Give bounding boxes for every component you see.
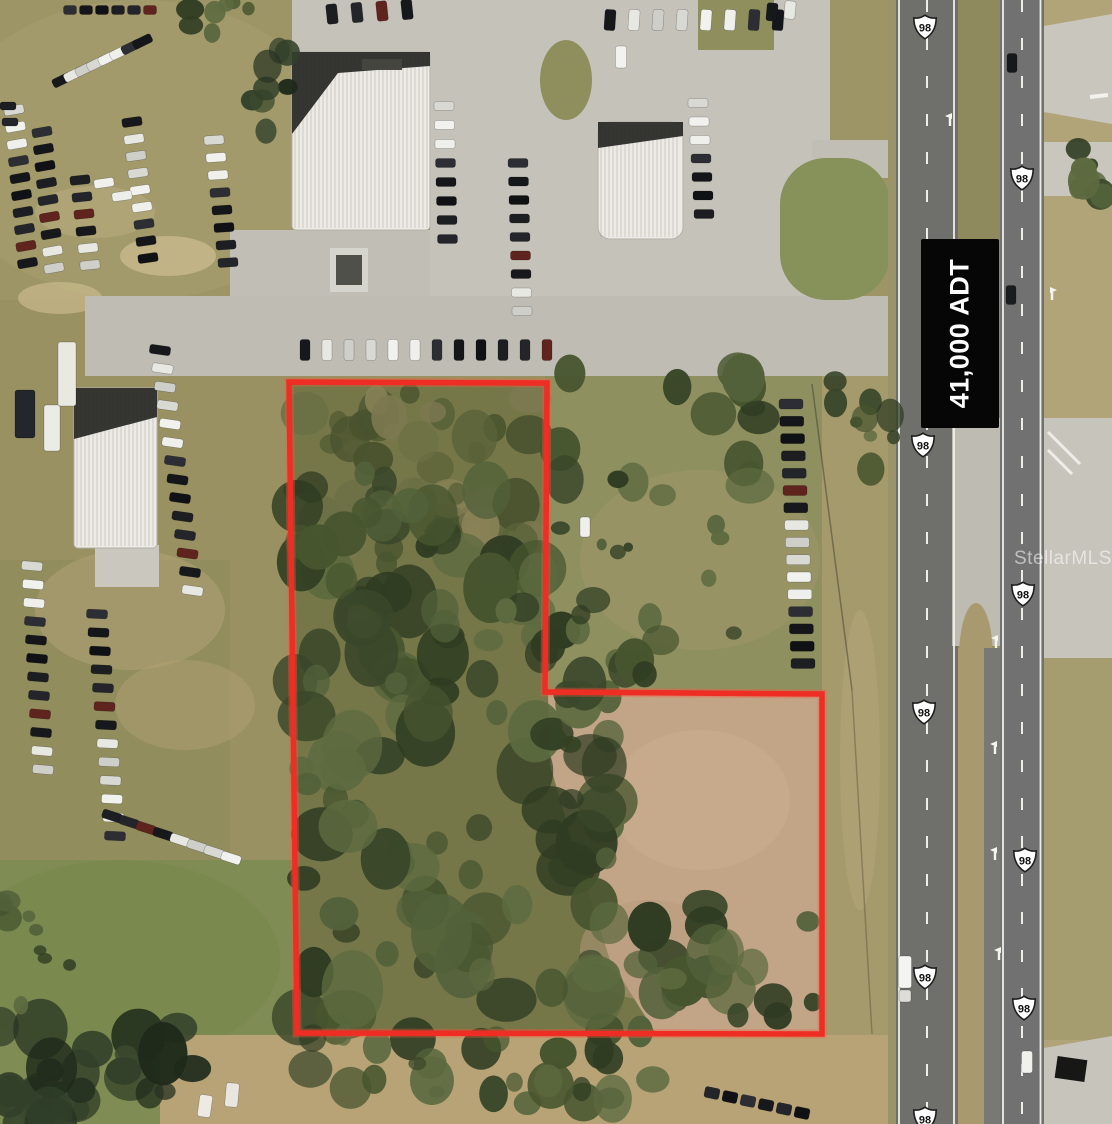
car bbox=[212, 205, 233, 215]
car bbox=[210, 187, 231, 197]
car bbox=[899, 956, 912, 988]
car bbox=[700, 9, 712, 31]
car bbox=[88, 627, 109, 637]
car bbox=[204, 135, 225, 145]
car bbox=[520, 340, 530, 361]
car bbox=[784, 1, 797, 20]
tree bbox=[535, 968, 567, 1007]
tree bbox=[385, 672, 407, 694]
car bbox=[789, 607, 813, 617]
car bbox=[511, 251, 531, 260]
car bbox=[375, 0, 388, 21]
terrain-patch bbox=[120, 236, 216, 276]
car bbox=[72, 191, 93, 202]
tree bbox=[554, 355, 585, 393]
car bbox=[780, 416, 804, 426]
billboard bbox=[1055, 1056, 1088, 1082]
road-surface bbox=[95, 545, 159, 587]
tree bbox=[502, 885, 532, 924]
route-number-text: 98 bbox=[919, 973, 931, 985]
car bbox=[410, 340, 420, 361]
tree bbox=[462, 461, 510, 519]
tree bbox=[63, 959, 76, 971]
road-surface bbox=[984, 648, 1000, 1124]
car bbox=[197, 1094, 213, 1118]
tree bbox=[404, 685, 453, 742]
car bbox=[206, 152, 227, 162]
tree bbox=[572, 1077, 591, 1101]
car bbox=[101, 794, 122, 804]
tree bbox=[663, 369, 691, 405]
car bbox=[1006, 286, 1016, 305]
tree bbox=[288, 1050, 332, 1087]
car bbox=[542, 340, 552, 361]
route-number-text: 98 bbox=[919, 1115, 931, 1124]
car bbox=[218, 257, 239, 267]
car bbox=[96, 6, 109, 15]
building bbox=[292, 52, 430, 230]
tree bbox=[23, 910, 36, 922]
car bbox=[785, 537, 809, 547]
tree bbox=[551, 521, 570, 534]
car bbox=[86, 609, 107, 619]
car bbox=[388, 340, 398, 361]
lane-marking bbox=[1090, 95, 1108, 97]
car bbox=[652, 9, 664, 31]
us-route-98-shield-icon: 98 bbox=[914, 1107, 936, 1124]
tree bbox=[496, 598, 517, 623]
road-surface bbox=[1044, 14, 1112, 124]
car bbox=[512, 307, 532, 316]
tree bbox=[419, 402, 446, 423]
car bbox=[688, 99, 708, 108]
car bbox=[80, 259, 101, 270]
car bbox=[476, 340, 486, 361]
car bbox=[400, 0, 413, 20]
car bbox=[787, 572, 811, 582]
car bbox=[779, 399, 803, 409]
car bbox=[44, 405, 60, 451]
route-number-text: 98 bbox=[1017, 590, 1029, 602]
car bbox=[89, 646, 110, 656]
car bbox=[112, 6, 125, 15]
terrain-patch bbox=[840, 610, 880, 910]
car bbox=[509, 196, 529, 205]
tree bbox=[242, 2, 254, 15]
car bbox=[100, 775, 121, 785]
tree bbox=[593, 1075, 632, 1123]
tree bbox=[138, 1022, 187, 1085]
car bbox=[104, 831, 125, 841]
tree bbox=[824, 388, 847, 417]
car bbox=[322, 340, 332, 361]
car bbox=[791, 659, 815, 669]
car bbox=[437, 216, 457, 225]
car bbox=[435, 140, 455, 149]
tree bbox=[636, 1066, 669, 1092]
car bbox=[30, 727, 52, 738]
tree bbox=[321, 747, 366, 790]
car bbox=[208, 170, 229, 180]
car bbox=[29, 709, 51, 720]
tree bbox=[727, 1003, 748, 1028]
tree bbox=[708, 929, 744, 976]
route-number-text: 98 bbox=[919, 23, 931, 35]
route-number-text: 98 bbox=[1016, 174, 1028, 186]
tree bbox=[204, 1, 225, 23]
tree bbox=[1066, 138, 1091, 160]
car bbox=[22, 579, 44, 590]
car bbox=[70, 174, 91, 185]
tree bbox=[469, 958, 495, 991]
car bbox=[144, 6, 157, 15]
car bbox=[74, 208, 95, 219]
tree bbox=[506, 1073, 523, 1092]
tree bbox=[722, 354, 765, 402]
tree bbox=[534, 1064, 562, 1097]
tree bbox=[726, 468, 775, 504]
tree bbox=[354, 461, 374, 486]
car bbox=[25, 635, 47, 646]
tree bbox=[519, 552, 558, 599]
tree bbox=[296, 524, 340, 570]
car bbox=[438, 235, 458, 244]
car bbox=[64, 6, 77, 15]
car bbox=[1007, 54, 1017, 73]
car bbox=[509, 177, 529, 186]
tree bbox=[597, 539, 607, 551]
car bbox=[580, 517, 590, 537]
tree bbox=[322, 950, 383, 1028]
car bbox=[1022, 1051, 1033, 1073]
car bbox=[92, 683, 113, 693]
car bbox=[510, 214, 530, 223]
tree bbox=[607, 471, 628, 489]
tree bbox=[392, 488, 429, 523]
tree bbox=[632, 661, 656, 687]
car bbox=[76, 225, 97, 236]
route-number-text: 98 bbox=[918, 708, 930, 720]
car bbox=[344, 340, 354, 361]
tree bbox=[398, 421, 439, 462]
tree bbox=[691, 392, 736, 435]
tree bbox=[887, 430, 900, 444]
tree bbox=[38, 953, 52, 964]
route-number-text: 98 bbox=[1019, 856, 1031, 868]
road-surface bbox=[85, 296, 902, 376]
car bbox=[94, 701, 115, 711]
car bbox=[785, 520, 809, 530]
car bbox=[15, 390, 35, 438]
tree bbox=[278, 79, 298, 95]
tree bbox=[857, 452, 884, 485]
terrain-patch bbox=[115, 660, 255, 750]
tree bbox=[764, 1002, 792, 1030]
car bbox=[788, 589, 812, 599]
tree bbox=[711, 531, 729, 546]
car bbox=[2, 118, 18, 126]
tree bbox=[649, 484, 676, 506]
car bbox=[27, 672, 49, 683]
tree bbox=[411, 894, 472, 973]
building bbox=[598, 122, 683, 239]
road-surface bbox=[540, 40, 592, 120]
car bbox=[510, 233, 530, 242]
car bbox=[512, 288, 532, 297]
tree bbox=[590, 902, 630, 944]
tree bbox=[486, 700, 507, 725]
car bbox=[0, 102, 16, 110]
route-number-text: 98 bbox=[1018, 1004, 1030, 1016]
car bbox=[224, 1082, 239, 1107]
tree bbox=[610, 545, 626, 560]
canopy-roof bbox=[336, 255, 362, 285]
car bbox=[454, 340, 464, 361]
car bbox=[58, 342, 76, 406]
tree bbox=[656, 968, 687, 990]
tree bbox=[578, 786, 627, 832]
car bbox=[689, 117, 709, 126]
car bbox=[691, 154, 711, 163]
tree bbox=[559, 789, 584, 809]
car bbox=[95, 720, 116, 730]
tree bbox=[796, 911, 819, 932]
tree bbox=[468, 441, 486, 464]
car bbox=[21, 561, 43, 572]
car bbox=[23, 598, 45, 609]
tree bbox=[376, 941, 399, 967]
road-surface bbox=[780, 158, 890, 300]
aerial-photo: 989898989898989898 41,000 ADT StellarMLS bbox=[0, 0, 1112, 1124]
car bbox=[790, 641, 814, 651]
car bbox=[436, 178, 456, 187]
tree bbox=[596, 847, 617, 869]
car bbox=[350, 2, 363, 23]
car bbox=[616, 46, 627, 68]
tree bbox=[179, 16, 203, 35]
tree bbox=[563, 657, 607, 711]
tree bbox=[253, 50, 281, 83]
tree bbox=[737, 401, 779, 435]
tree bbox=[14, 996, 28, 1015]
car bbox=[782, 468, 806, 478]
car bbox=[128, 6, 141, 15]
tree bbox=[330, 1067, 372, 1109]
car bbox=[366, 340, 376, 361]
car bbox=[690, 136, 710, 145]
car bbox=[784, 503, 808, 513]
tree bbox=[726, 626, 742, 639]
car bbox=[31, 746, 53, 757]
traffic-count-sign: 41,000 ADT bbox=[921, 239, 999, 428]
car bbox=[693, 191, 713, 200]
car bbox=[24, 616, 46, 627]
car bbox=[78, 242, 99, 253]
car bbox=[300, 340, 310, 361]
tree bbox=[72, 1031, 113, 1068]
tree bbox=[106, 1057, 141, 1085]
car bbox=[97, 738, 118, 748]
tree bbox=[572, 957, 620, 993]
tree bbox=[352, 497, 382, 528]
terrain-patch bbox=[580, 470, 820, 650]
car bbox=[26, 653, 48, 664]
car bbox=[789, 624, 813, 634]
car bbox=[437, 197, 457, 206]
tree bbox=[299, 1024, 326, 1052]
car bbox=[325, 3, 338, 24]
tree bbox=[336, 589, 394, 641]
tree bbox=[29, 924, 43, 936]
tree bbox=[479, 1075, 508, 1112]
tree bbox=[466, 660, 498, 698]
tree bbox=[430, 609, 460, 642]
car bbox=[436, 159, 456, 168]
car bbox=[508, 159, 528, 168]
tree bbox=[877, 399, 904, 433]
tree bbox=[540, 1037, 577, 1069]
car bbox=[511, 270, 531, 279]
car bbox=[724, 9, 736, 31]
road-surface bbox=[1044, 418, 1112, 658]
tree bbox=[563, 734, 616, 777]
car bbox=[498, 340, 508, 361]
car bbox=[435, 121, 455, 130]
car bbox=[694, 210, 714, 219]
car bbox=[604, 9, 616, 31]
road-surface bbox=[888, 0, 896, 1124]
car bbox=[766, 3, 779, 22]
building bbox=[74, 388, 157, 548]
tree bbox=[571, 605, 590, 624]
car bbox=[32, 764, 54, 775]
tree bbox=[320, 897, 359, 931]
tree bbox=[408, 1057, 426, 1070]
car bbox=[91, 664, 112, 674]
route-number-text: 98 bbox=[917, 441, 929, 453]
car bbox=[676, 9, 688, 31]
tree bbox=[546, 455, 584, 504]
tree bbox=[204, 23, 220, 43]
tree bbox=[459, 860, 483, 889]
car bbox=[781, 451, 805, 461]
car bbox=[434, 102, 454, 111]
mls-watermark: StellarMLS bbox=[1014, 548, 1112, 570]
car bbox=[692, 173, 712, 182]
tree bbox=[701, 569, 716, 586]
car bbox=[216, 240, 237, 250]
traffic-count-label: 41,000 ADT bbox=[945, 259, 976, 409]
terrain-patch bbox=[1044, 620, 1112, 1040]
car bbox=[432, 340, 442, 361]
car bbox=[899, 990, 911, 1002]
tree bbox=[319, 800, 378, 853]
aerial-scene-canvas: 989898989898989898 bbox=[0, 0, 1112, 1124]
car bbox=[80, 6, 93, 15]
car bbox=[748, 9, 760, 31]
car bbox=[214, 222, 235, 232]
car bbox=[781, 434, 805, 444]
tree bbox=[330, 416, 370, 462]
tree bbox=[474, 629, 503, 651]
car bbox=[786, 555, 810, 565]
tree bbox=[255, 119, 276, 144]
car bbox=[783, 486, 807, 496]
tree bbox=[1068, 163, 1100, 200]
car bbox=[98, 757, 119, 767]
tree bbox=[628, 902, 671, 952]
car bbox=[28, 690, 50, 701]
tree bbox=[852, 405, 878, 432]
tree bbox=[466, 814, 492, 841]
car bbox=[628, 9, 640, 31]
